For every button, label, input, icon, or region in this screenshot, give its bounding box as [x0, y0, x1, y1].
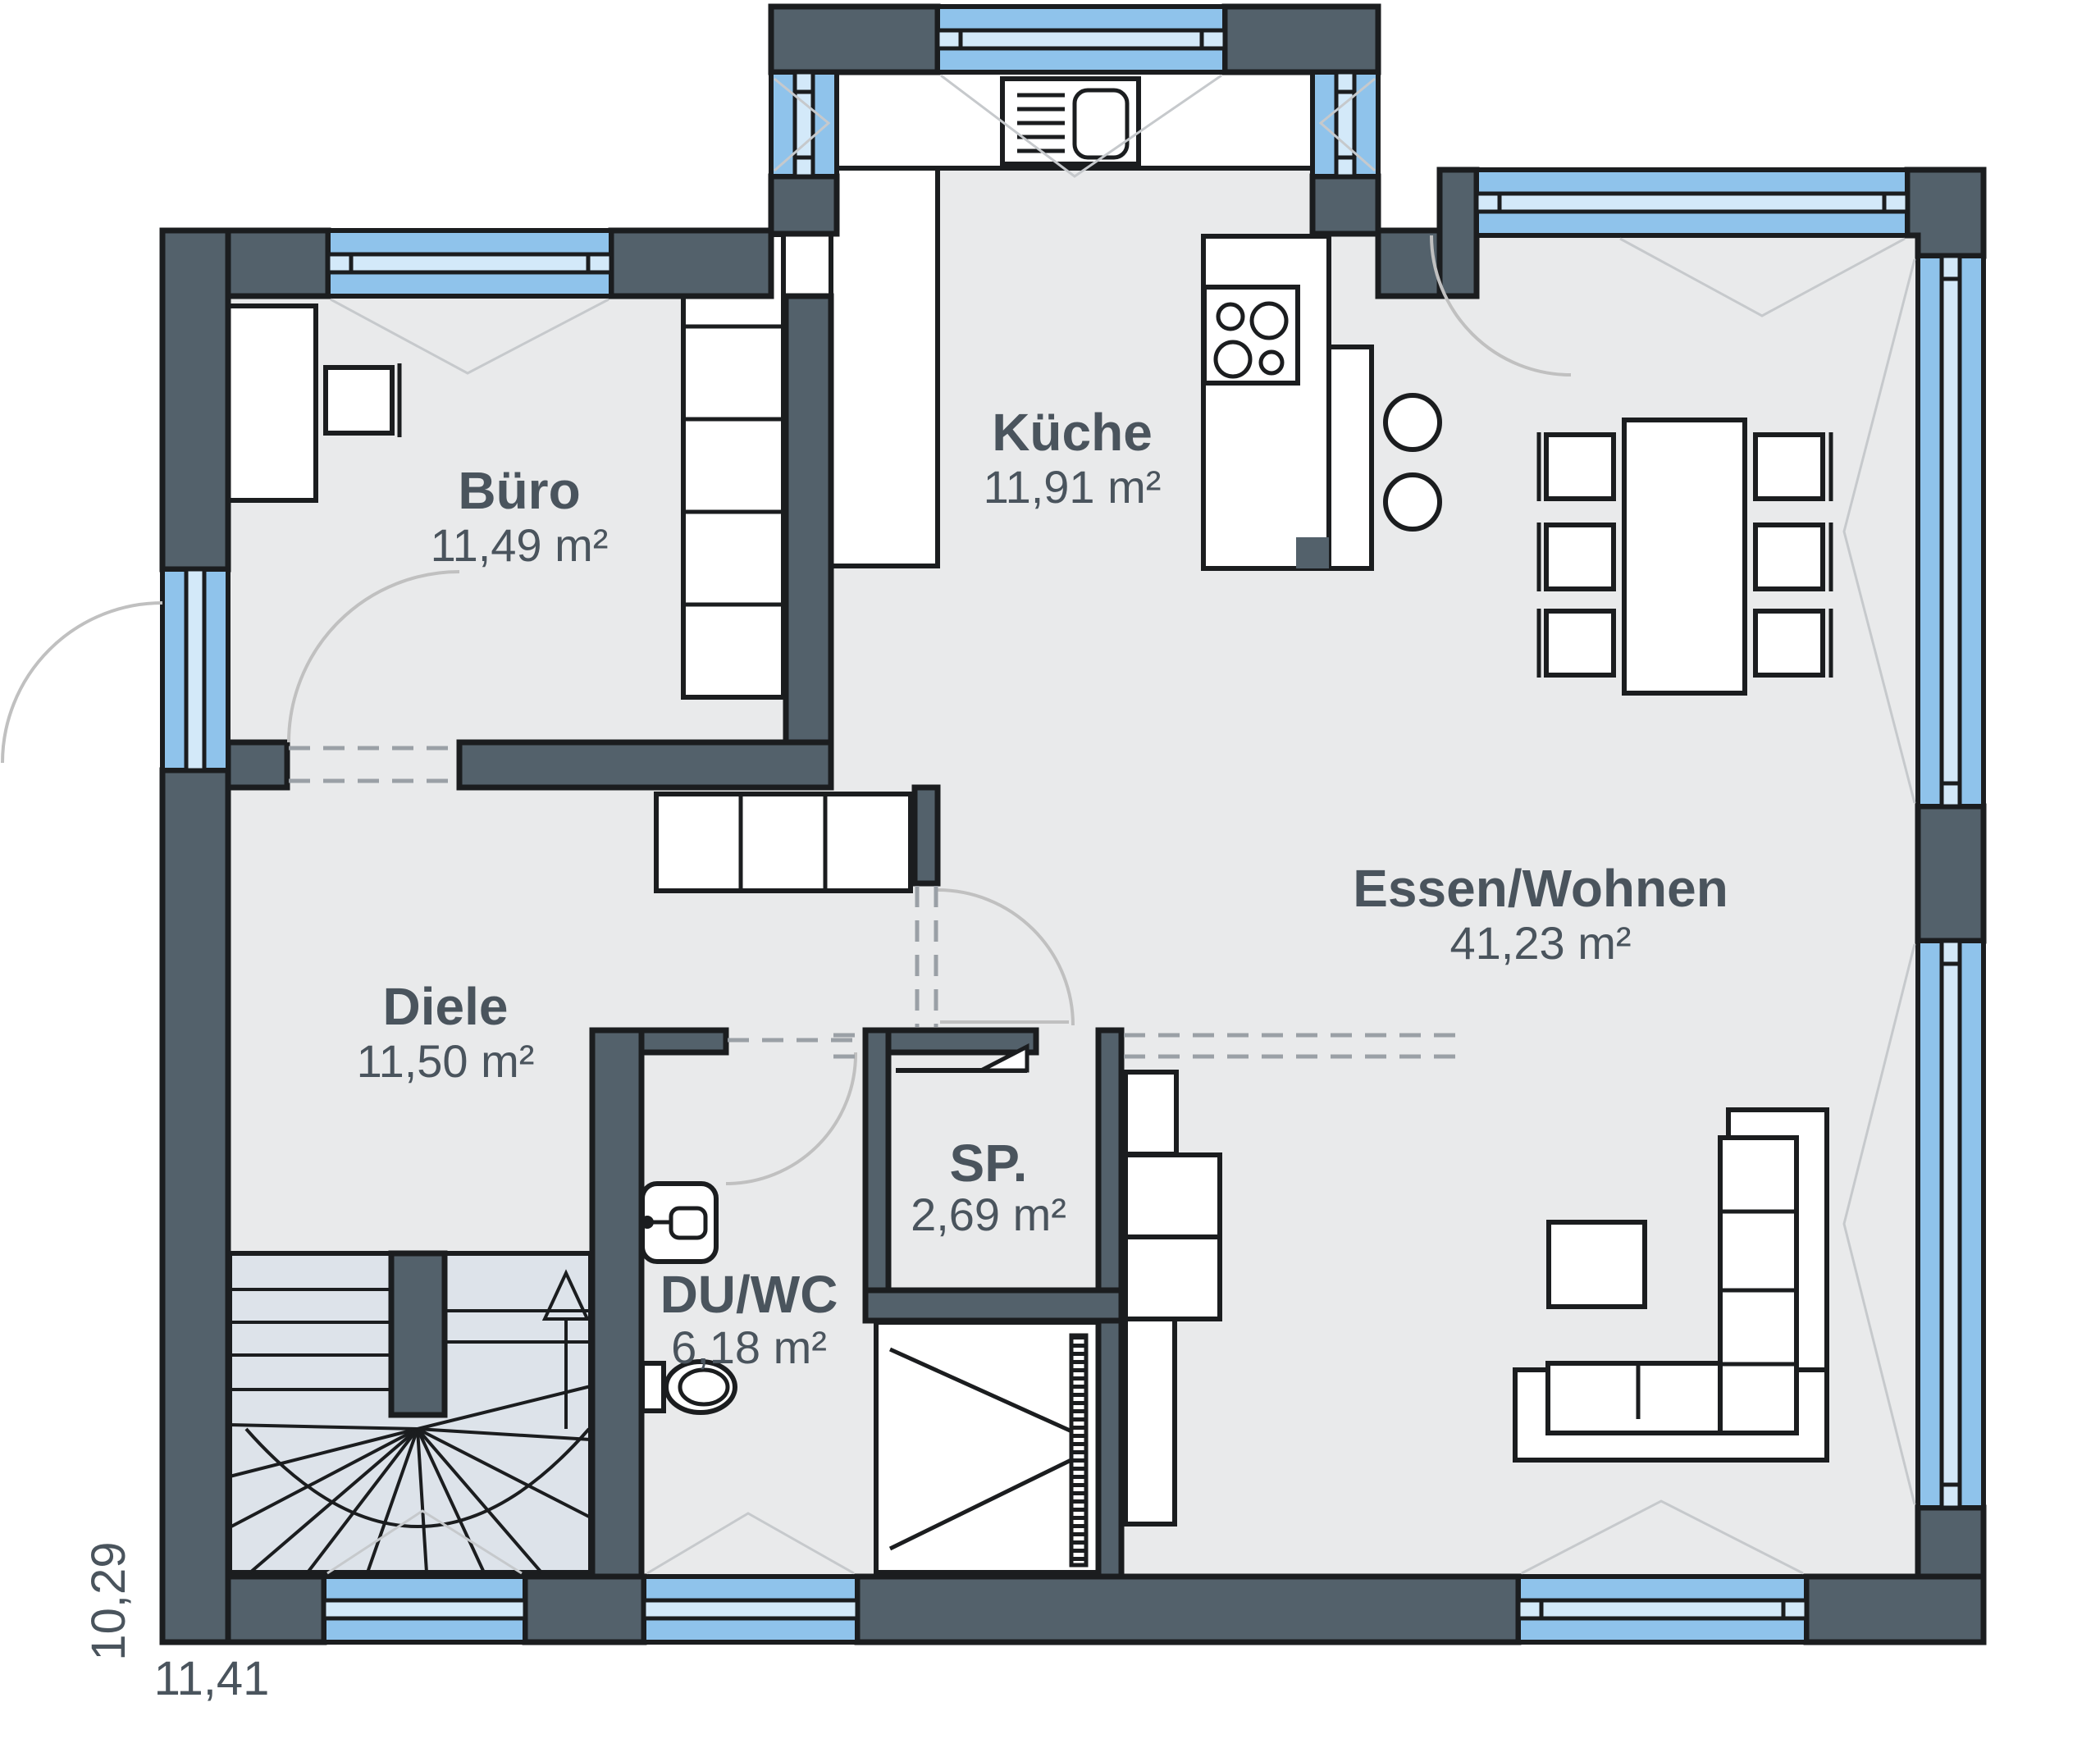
label-diele-name: Diele	[383, 977, 509, 1036]
entrance-door-glazed	[162, 569, 228, 770]
wall-corner-bottom-right	[1806, 1577, 1984, 1642]
wall-buero-bottom-b	[459, 742, 831, 787]
wall-buero-kueche	[786, 296, 831, 742]
window-living-bottom	[1518, 1577, 1806, 1642]
wall-buero-bottom-a	[228, 742, 287, 787]
label-duwc-area: 6,18 m²	[671, 1321, 827, 1373]
wall-bottom-left-mid	[525, 1577, 644, 1642]
cooktop-icon	[1204, 287, 1298, 383]
label-kueche-name: Küche	[992, 403, 1153, 462]
kitchen-pillar	[1296, 537, 1329, 568]
label-essen-wohnen-area: 41,23 m²	[1450, 917, 1632, 969]
wall-sp-bottom	[865, 1290, 1121, 1321]
label-sp-area: 2,69 m²	[911, 1189, 1066, 1240]
wall-bay-right-lower	[1312, 176, 1378, 234]
stair-spine-wall	[391, 1253, 445, 1415]
wall-left-lower	[162, 770, 228, 1642]
shower-icon	[876, 1322, 1103, 1572]
entrance-door-swing	[2, 603, 162, 763]
bar-stool-icon	[1386, 475, 1440, 529]
dimension-height: 10,29	[82, 1541, 135, 1660]
label-duwc-name: DU/WC	[660, 1265, 838, 1324]
label-diele-area: 11,50 m²	[357, 1035, 535, 1087]
coffee-table-icon	[1549, 1222, 1645, 1307]
shelf-unit-icon	[683, 235, 783, 697]
wall-step-pier	[1440, 170, 1477, 296]
floor-plan-page: Büro 11,49 m² Küche 11,91 m² Essen/Wohne…	[0, 0, 2100, 1757]
dining-table-icon	[1624, 420, 1745, 693]
wall-duwc-left	[592, 1030, 641, 1577]
wall-left-upper	[162, 230, 228, 569]
label-kueche-area: 11,91 m²	[984, 461, 1162, 513]
washbasin-icon	[641, 1184, 716, 1262]
wall-bay-top-right	[1225, 7, 1378, 72]
bar-stool-icon	[1386, 395, 1440, 450]
breakfast-bar-icon	[1329, 347, 1372, 568]
window-buero-top	[328, 230, 611, 296]
label-sp-name: SP.	[950, 1134, 1028, 1193]
label-buero-area: 11,49 m²	[431, 519, 609, 571]
wall-corner-top-right	[1907, 170, 1984, 256]
wall-top-mid	[611, 230, 771, 296]
wall-right-pier	[1918, 806, 1984, 941]
wall-duwc-top	[641, 1030, 726, 1052]
kitchen-counter-left	[831, 168, 938, 566]
hall-wardrobe-icon	[656, 794, 911, 891]
wall-center-stub	[915, 787, 938, 883]
label-buero-name: Büro	[458, 461, 580, 520]
window-bay-top	[938, 7, 1225, 72]
wall-bay-left-lower	[771, 176, 837, 234]
kitchen-sink-icon	[1002, 79, 1139, 164]
office-chair-icon	[326, 367, 392, 433]
window-right-lower	[1918, 941, 1984, 1508]
floor-corridor	[786, 787, 831, 1577]
wall-sp-left	[865, 1030, 888, 1290]
label-essen-wohnen-name: Essen/Wohnen	[1353, 859, 1728, 918]
window-right-upper	[1918, 256, 1984, 806]
window-stairs-bottom	[324, 1577, 525, 1642]
floor-plan-drawing: Büro 11,49 m² Küche 11,91 m² Essen/Wohne…	[0, 0, 2100, 1757]
window-terrace-band	[1477, 170, 1907, 235]
dimension-width: 11,41	[154, 1652, 270, 1705]
desk-icon	[228, 306, 316, 500]
wall-bottom-mid	[857, 1577, 1518, 1642]
window-duwc-bottom	[644, 1577, 857, 1642]
wall-bay-top-left	[771, 7, 938, 72]
winder-staircase-icon	[230, 1253, 591, 1572]
